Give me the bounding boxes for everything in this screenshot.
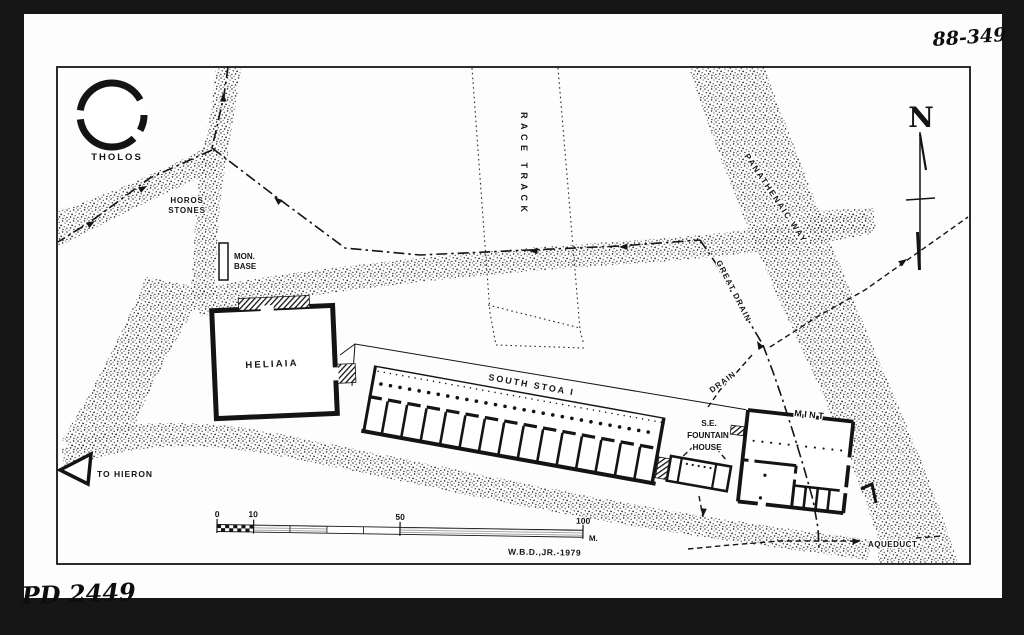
mon-base-label-line1: MON.	[234, 252, 255, 261]
heliaia-north-opening	[261, 305, 274, 313]
scale-label-100: 100	[576, 516, 591, 526]
heliaia-building	[211, 294, 357, 419]
scale-unit-label: M.	[589, 534, 598, 543]
scale-label-0: 0	[215, 509, 220, 519]
tholos-building	[80, 83, 144, 147]
to-hieron-label: TO HIERON	[97, 469, 153, 479]
scale-label-10: 10	[248, 509, 258, 519]
tholos-label: THOLOS	[91, 152, 143, 163]
monument-base	[219, 243, 228, 280]
heliaia-east-opening	[332, 367, 339, 380]
heliaia-east-gate-block	[337, 364, 356, 384]
horos-stones-label-line2: STONES	[168, 206, 206, 215]
heliaia-label: HELIAIA	[245, 358, 299, 371]
heliaia-north-gate-block	[238, 295, 309, 310]
race-track-label: RACE TRACK	[519, 112, 529, 217]
north-letter: N	[908, 101, 934, 134]
mon-base-label-line2: BASE	[234, 262, 257, 271]
aqueduct-label: AQUEDUCT	[868, 540, 917, 549]
scale-label-50: 50	[395, 512, 405, 522]
mint-floor	[735, 408, 855, 517]
se-fountain-label-line2: FOUNTAIN	[687, 431, 729, 440]
se-fountain-label-line1: S.E.	[701, 419, 716, 428]
se-fountain-label-line3: HOUSE	[692, 443, 722, 452]
mint-west-gate-block	[730, 425, 744, 435]
site-plan-canvas: N 0 10 50 100 M. W.B.D.,JR.-1979 THOLOS …	[0, 0, 1024, 635]
horos-stones-label-line1: HOROS	[170, 196, 203, 205]
catalog-number-bottom-left: PD 2449	[20, 577, 136, 610]
north-arrow-tail	[918, 232, 920, 270]
credit-label: W.B.D.,JR.-1979	[508, 547, 581, 558]
